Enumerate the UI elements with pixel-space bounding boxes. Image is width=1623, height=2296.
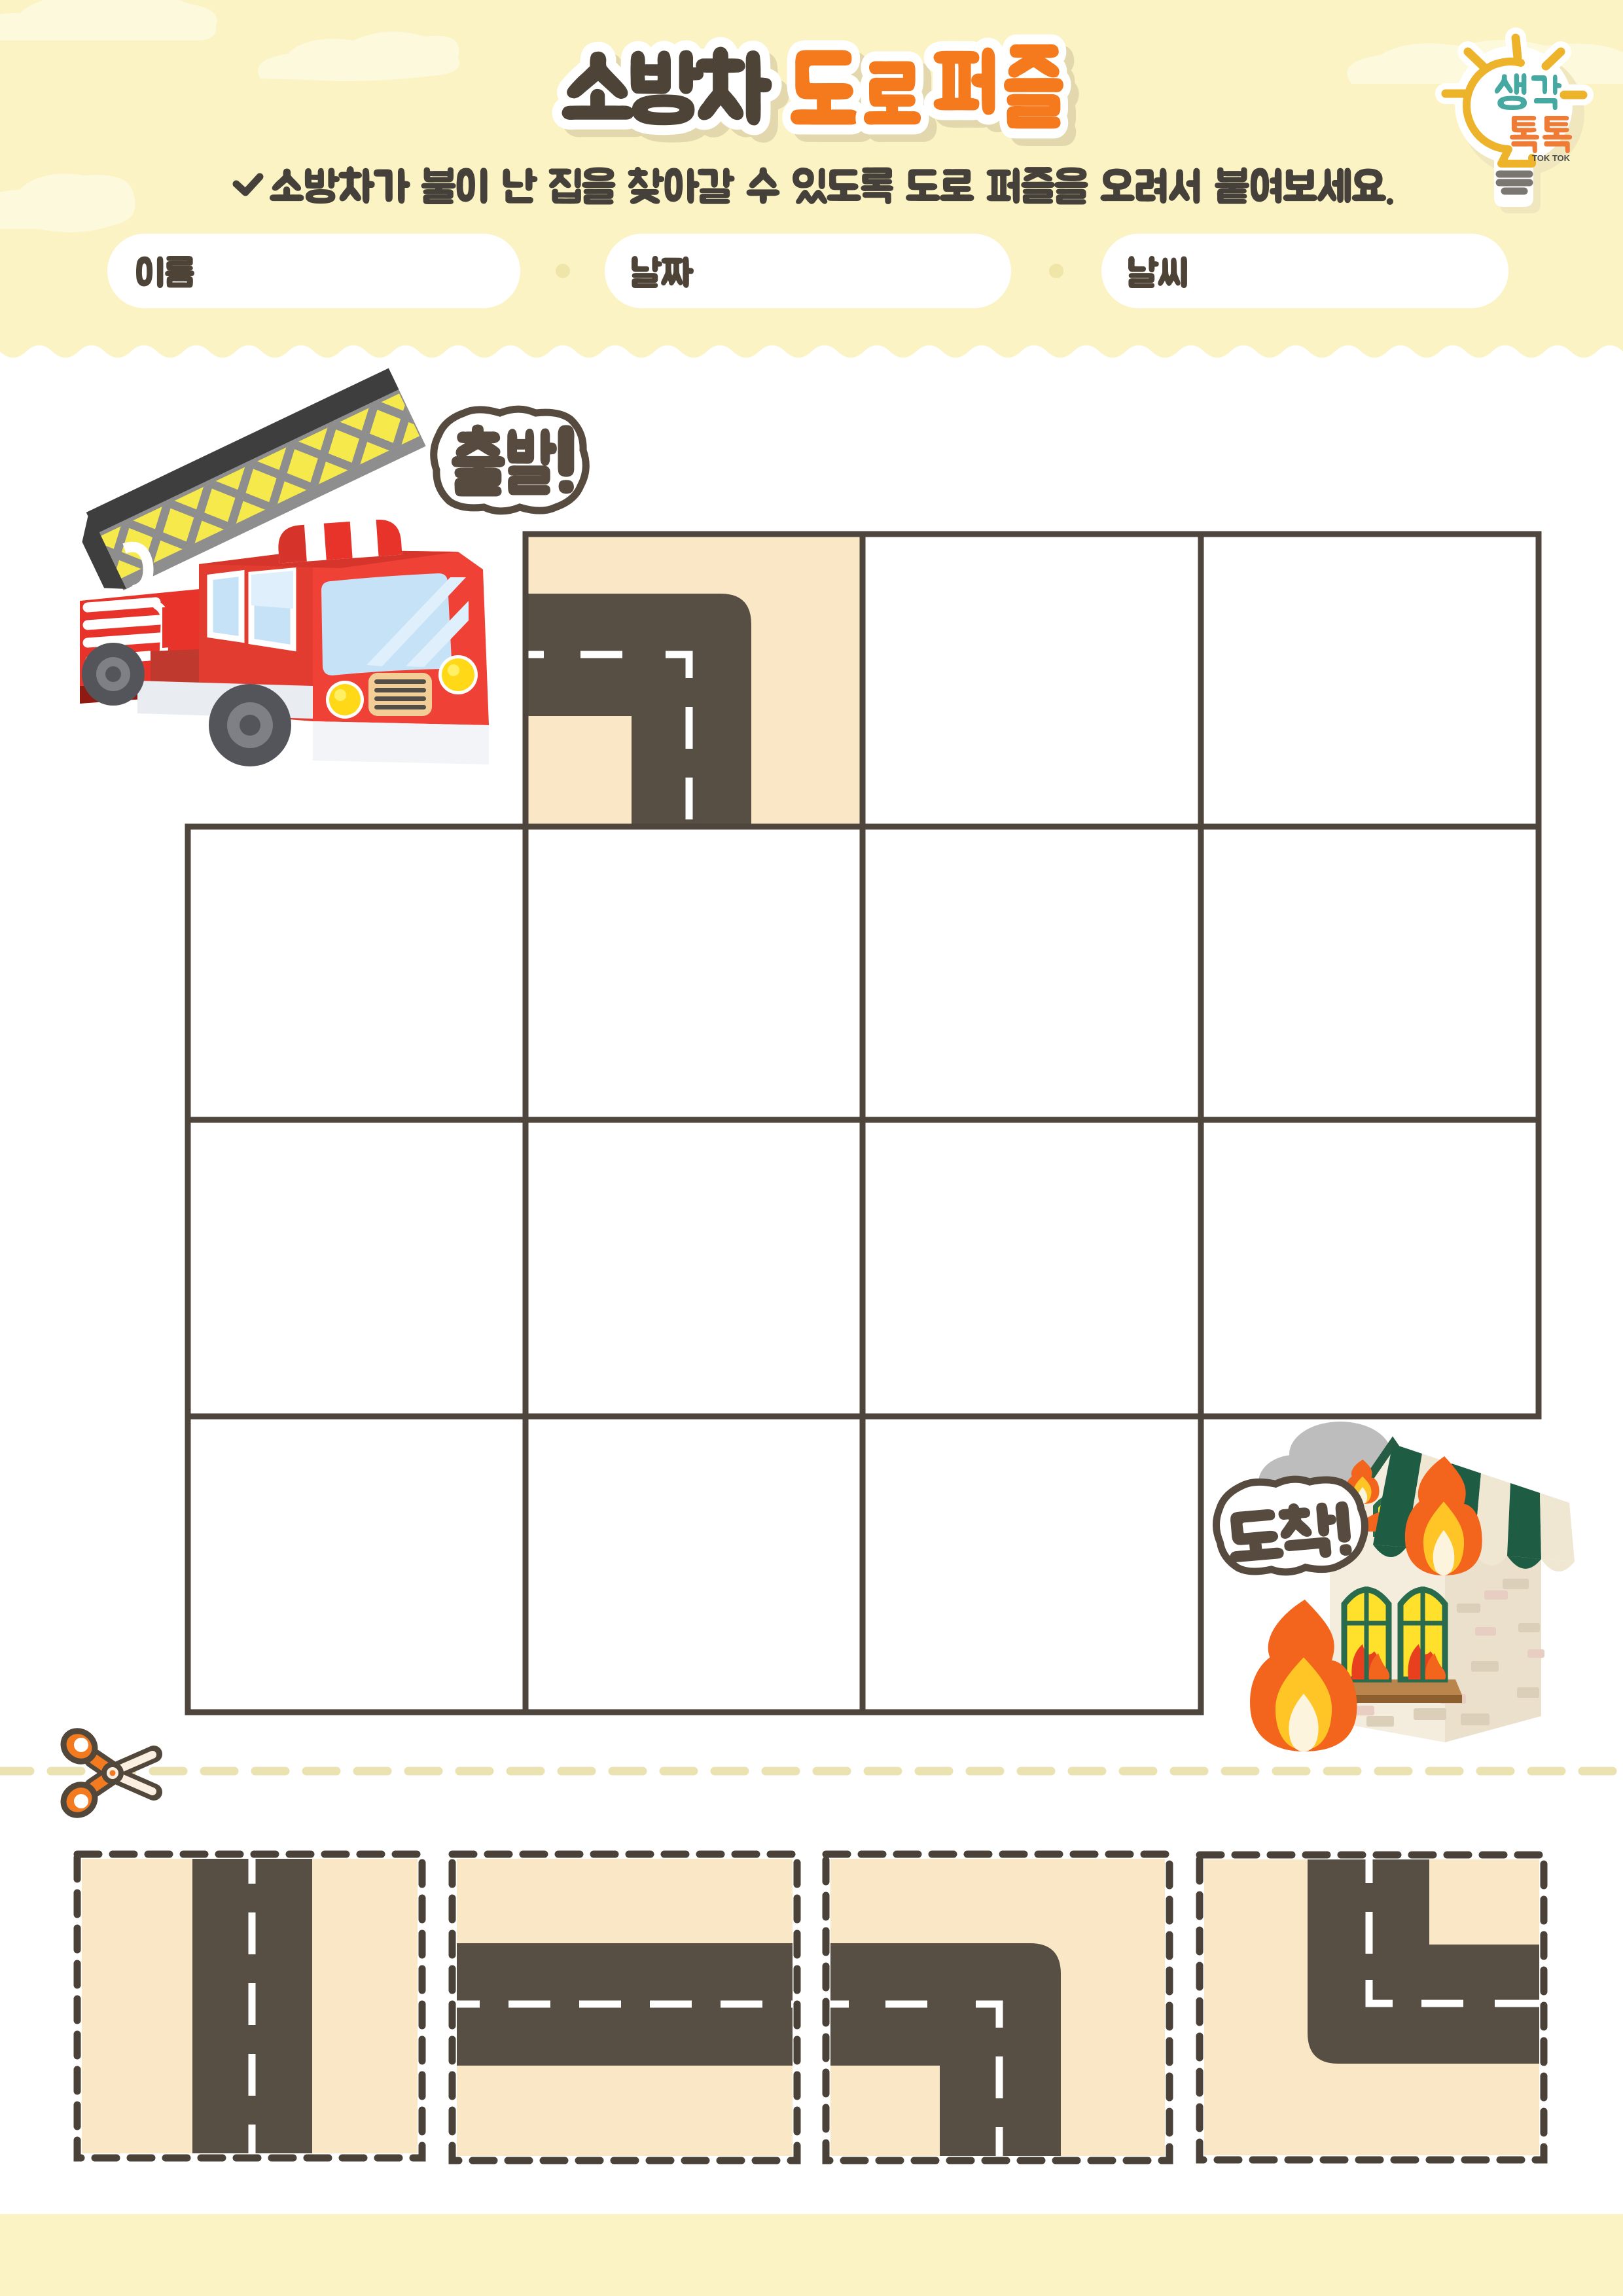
- svg-text:TOK TOK: TOK TOK: [1532, 153, 1571, 163]
